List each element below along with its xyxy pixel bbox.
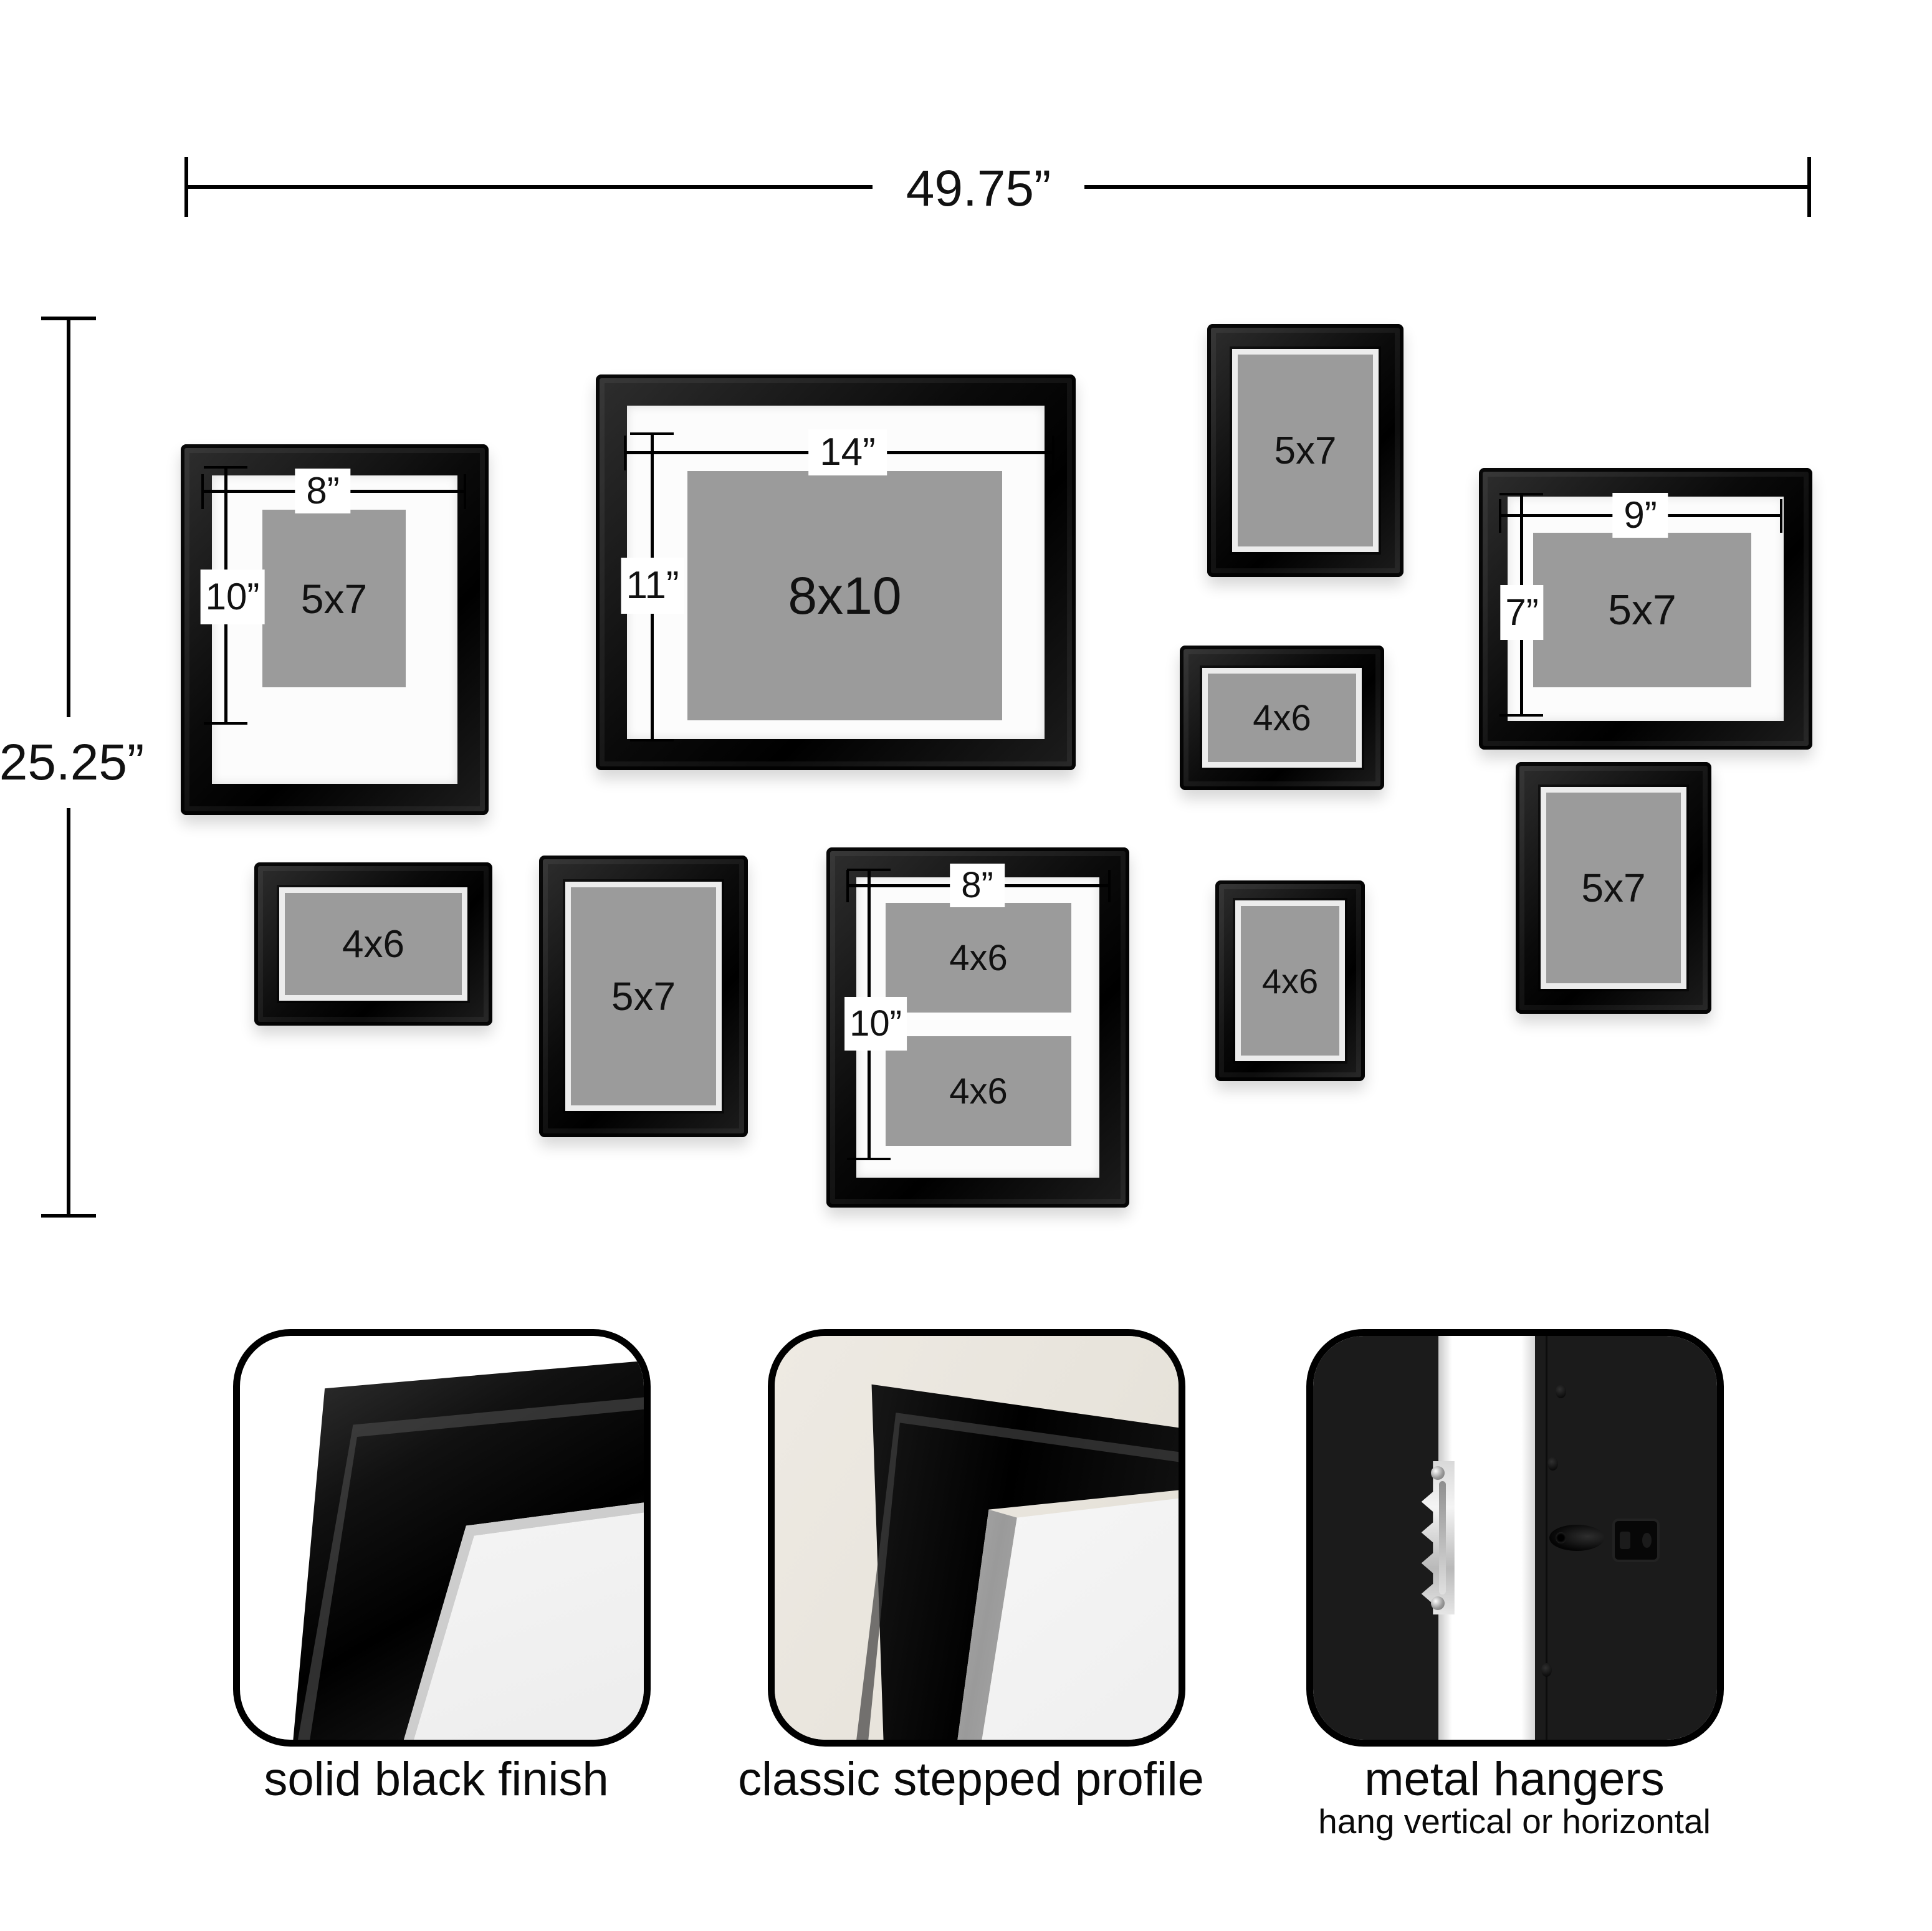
photo-size-label: 4x6 — [949, 937, 1008, 979]
photo-size-label: 8x10 — [788, 566, 901, 626]
photo-placeholder: 5x7 — [565, 882, 722, 1111]
feature-thumb-finish — [233, 1329, 651, 1747]
mat-width-label: 14” — [808, 429, 887, 475]
dim-line-segment — [1084, 185, 1809, 189]
photo-size-label: 5x7 — [1274, 429, 1337, 473]
swivel-tab-hole — [1556, 1532, 1566, 1543]
d-ring-notch — [1620, 1532, 1631, 1548]
photo-placeholder: 8x10 — [687, 471, 1002, 720]
frame-plain-4x6-bottom-left: 4x6 — [254, 862, 492, 1026]
feature-caption-profile: classic stepped profile — [738, 1756, 1204, 1803]
frame-matted-5x7-right: 5x7 9” 7” — [1479, 468, 1812, 750]
photo-placeholder: 4x6 — [1235, 900, 1345, 1061]
dim-line-segment — [67, 318, 70, 717]
photo-placeholder: 5x7 — [1533, 533, 1751, 687]
overall-width-label: 49.75” — [895, 160, 1063, 218]
feature-caption-finish: solid black finish — [264, 1756, 608, 1803]
photo-placeholder-bottom: 4x6 — [886, 1036, 1071, 1146]
dim-line-segment — [67, 808, 70, 1216]
sawtooth-slot — [1439, 1481, 1445, 1594]
mat-height-label: 10” — [844, 997, 907, 1051]
frame-plain-4x6-portrait: 4x6 — [1215, 880, 1365, 1081]
photo-size-label: 4x6 — [949, 1070, 1008, 1112]
mat-width-label: 9” — [1612, 493, 1668, 538]
mat-height-label: 10” — [201, 570, 265, 624]
frame-plain-5x7-top: 5x7 — [1207, 324, 1404, 577]
nail-hole — [1556, 1385, 1566, 1398]
photo-placeholder: 5x7 — [1232, 349, 1379, 552]
photo-size-label: 4x6 — [342, 922, 404, 966]
frame-matted-5x7-left: 5x7 8” 10” — [181, 444, 489, 815]
photo-placeholder: 4x6 — [1202, 668, 1362, 768]
product-infographic: { "overall_dims": { "width_label": "49.7… — [0, 0, 1932, 1931]
photo-size-label: 5x7 — [611, 973, 676, 1019]
d-ring-notch — [1642, 1533, 1652, 1548]
photo-size-label: 5x7 — [1581, 865, 1645, 911]
mat-width-label: 8” — [295, 469, 350, 513]
frame-matted-8x10: 8x10 14” 11” — [596, 374, 1076, 770]
mat-width-label: 8” — [950, 864, 1005, 907]
photo-size-label: 4x6 — [1262, 961, 1318, 1001]
photo-size-label: 5x7 — [301, 575, 367, 622]
photo-placeholder: 5x7 — [1541, 787, 1686, 989]
frame-plain-4x6-mid: 4x6 — [1180, 646, 1384, 790]
nail-hole — [1541, 1663, 1552, 1677]
feature-thumb-hangers — [1306, 1329, 1724, 1747]
d-ring-hanger-icon — [1612, 1519, 1660, 1562]
frame-plain-5x7-bottom: 5x7 — [539, 856, 748, 1137]
frame-corner-photo — [240, 1336, 644, 1740]
photo-size-label: 5x7 — [1608, 586, 1676, 634]
nail-hole — [1547, 1457, 1558, 1471]
photo-size-label: 4x6 — [1253, 697, 1311, 739]
photo-placeholder: 5x7 — [262, 510, 406, 687]
frame-back-photo — [1313, 1336, 1717, 1740]
frame-plain-5x7-right: 5x7 — [1516, 762, 1711, 1014]
dim-line-segment — [186, 185, 873, 189]
photo-placeholder-top: 4x6 — [886, 903, 1071, 1013]
backing-seam — [1546, 1336, 1547, 1740]
screw-icon — [1431, 1466, 1445, 1480]
feature-subcaption-hangers: hang vertical or horizontal — [1318, 1805, 1711, 1839]
mat-height-label: 7” — [1500, 585, 1543, 640]
frame-matted-double-4x6: 4x6 4x6 8” 10” — [826, 847, 1129, 1208]
feature-caption-hangers: metal hangers — [1364, 1756, 1665, 1803]
overall-height-label: 25.25” — [0, 733, 155, 792]
photo-placeholder: 4x6 — [279, 887, 467, 1001]
feature-thumb-profile — [768, 1329, 1185, 1747]
frame-profile-photo — [775, 1336, 1179, 1740]
mat-height-label: 11” — [621, 558, 684, 614]
